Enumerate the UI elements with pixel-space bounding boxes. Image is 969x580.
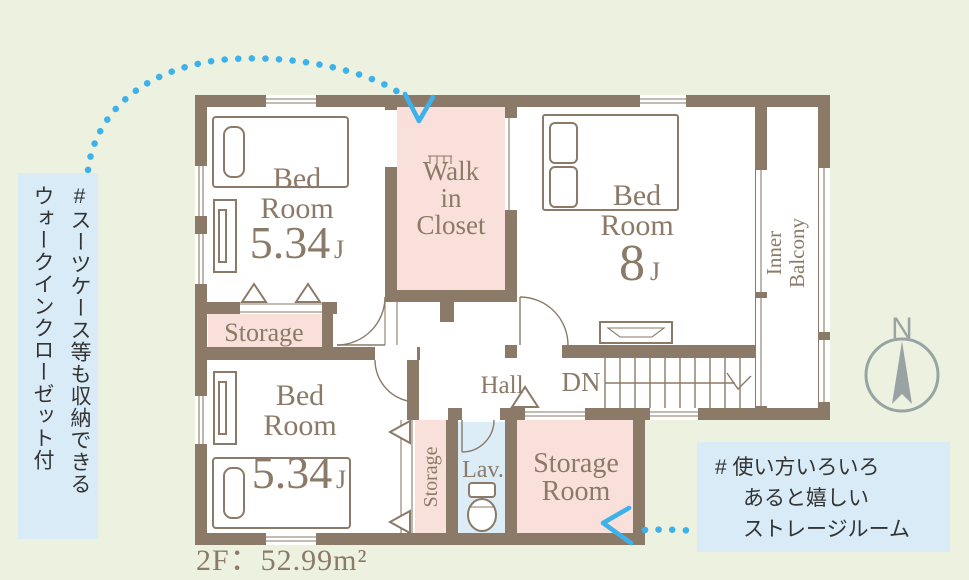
- toilet: [468, 483, 496, 531]
- floor-plan-page: Bed Room 5.34 J Walk in Closet Bed Room …: [0, 0, 969, 580]
- bedroom-right-unit: J: [650, 257, 660, 286]
- dresser: [214, 372, 236, 444]
- window: [266, 95, 316, 107]
- storage-room-label: Storage: [533, 448, 619, 479]
- wall-segment: [448, 408, 462, 420]
- stairs-dn-label: DN: [562, 367, 601, 397]
- callout-line: あると嬉しい: [743, 483, 950, 514]
- door-opening: [375, 347, 417, 360]
- storage-column-label: Storage: [420, 446, 442, 507]
- window: [195, 396, 207, 444]
- bedroom-right-label: Bed: [613, 179, 661, 212]
- storage-room-label: Room: [542, 476, 611, 507]
- dotted-arrow-to-storage-room: [645, 530, 698, 531]
- dresser: [214, 200, 236, 272]
- callout-column: ウォークインクローゼット付: [24, 185, 61, 539]
- wall-segment: [385, 290, 517, 302]
- walk-in-closet-callout: #スーツケース等も収納できる ウォークインクローゼット付: [18, 173, 98, 539]
- door-opening: [517, 345, 562, 358]
- bedroom-top-left-label: Bed: [273, 162, 321, 195]
- window: [650, 408, 698, 420]
- bedroom-bottom-left-unit: J: [336, 465, 346, 494]
- balcony-window: [756, 170, 767, 406]
- walk-in-closet-label: in: [440, 183, 462, 213]
- storage-room-callout: # 使い方いろいろ あると嬉しい ストレージルーム: [697, 442, 950, 552]
- wall-segment: [562, 345, 767, 358]
- tv-board: [600, 322, 672, 343]
- inner-balcony-label: Inner: [762, 231, 786, 275]
- bedroom-bottom-left-label: Bed: [276, 379, 324, 412]
- door-opening: [337, 302, 385, 314]
- bedroom-bottom-left-size: 5.34: [252, 447, 333, 498]
- window: [195, 166, 207, 216]
- bedroom-bottom-left-label: Room: [263, 409, 336, 442]
- window: [195, 234, 207, 284]
- balcony-window: [819, 168, 830, 402]
- callout-line: ストレージルーム: [743, 514, 950, 545]
- closet-front-opening: [505, 118, 517, 210]
- wall-segment: [440, 302, 454, 322]
- window: [640, 95, 686, 107]
- wall-segment: [633, 408, 645, 545]
- bedroom-top-left-size: 5.34: [250, 217, 331, 268]
- door-opening: [462, 408, 500, 420]
- callout-line: # 使い方いろいろ: [715, 452, 950, 483]
- hall-label: Hall: [480, 372, 523, 399]
- wall-segment: [446, 420, 458, 533]
- wall-segment: [195, 302, 240, 314]
- callout-column: #スーツケース等も収納できる: [61, 185, 98, 539]
- wall-segment: [505, 345, 517, 358]
- walk-in-closet-label: Closet: [416, 210, 486, 240]
- bedroom-right-size: 8: [619, 235, 645, 292]
- bedroom-top-left-unit: J: [334, 235, 344, 264]
- lavatory-label: Lav.: [462, 457, 504, 483]
- wall-segment: [505, 420, 517, 533]
- door-opening: [385, 110, 397, 167]
- walk-in-closet-label: Walk: [423, 156, 480, 186]
- wall-segment: [195, 95, 207, 545]
- floor-area-label: 2F：52.99m²: [196, 544, 368, 577]
- compass-icon: N: [866, 312, 938, 411]
- storage-closet-label: Storage: [224, 318, 303, 347]
- compass-needle: [892, 341, 912, 404]
- inner-balcony-label: Balcony: [785, 218, 809, 288]
